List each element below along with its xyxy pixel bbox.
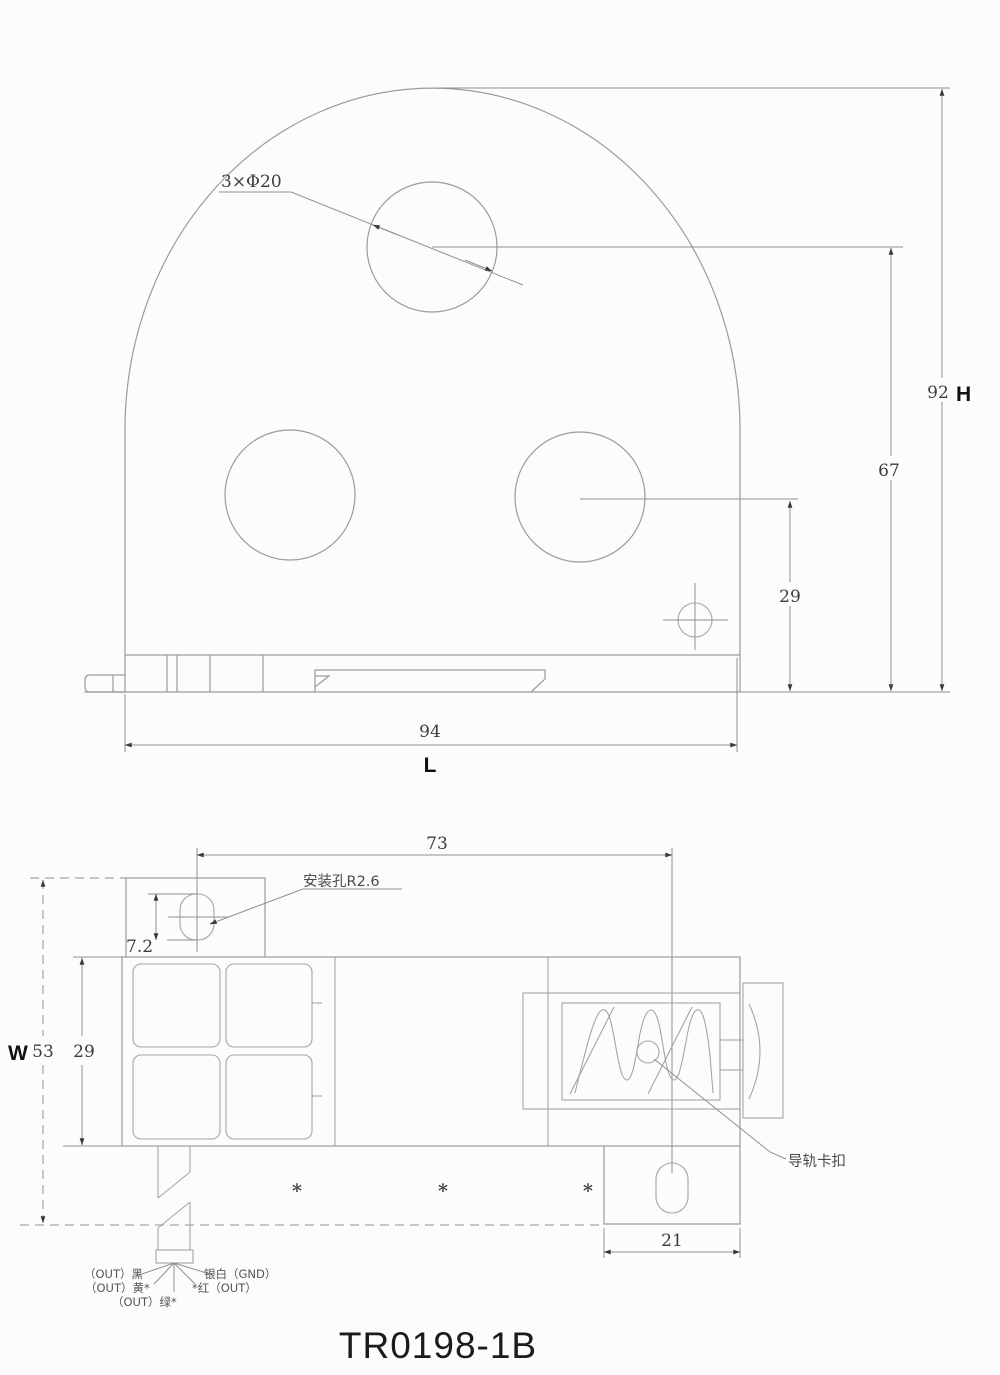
side-body-outline (122, 957, 740, 1146)
dim-total-width-value: 94 (419, 722, 441, 742)
clip-spring (575, 1010, 713, 1093)
dim-lower-hole-height: 29 (779, 501, 801, 691)
footnote-mark-3: * (583, 1180, 593, 1202)
wire-label-red: *红（OUT） (192, 1281, 257, 1295)
dim-total-width-label: L (424, 754, 437, 777)
dim-total-height-label: H (956, 383, 971, 406)
mounting-hole-note: 安装孔R2.6 (303, 873, 380, 890)
dim-body-depth: 29 (63, 957, 122, 1146)
dim-total-height-value: 92 (927, 383, 949, 403)
side-view: 7.2 73 安装孔R2.6 (8, 834, 846, 1309)
dim-total-depth: W 53 (8, 878, 604, 1225)
dim-hole-center-height-value: 67 (878, 461, 900, 481)
foot-left-tab (85, 675, 125, 692)
clip-spring-hole (637, 1041, 659, 1063)
wire-label-green: （OUT）绿* (112, 1295, 177, 1309)
rail-clip-assembly (523, 983, 786, 1159)
small-hole (663, 583, 728, 650)
wire-labels: （OUT）黑 银白（GND） （OUT）黄* *红（OUT） （OUT）绿* (84, 1267, 276, 1309)
drawing-title: TR0198-1B (339, 1325, 537, 1366)
footnote-mark-2: * (438, 1180, 448, 1202)
wire-bundle (136, 1146, 213, 1292)
rail-clip-note: 导轨卡扣 (788, 1153, 846, 1170)
hole-note: 3×Φ20 (221, 172, 282, 192)
clip-window-outer (523, 993, 740, 1109)
dim-hole-center-height: 67 (878, 248, 900, 691)
dim-total-height: 92 H (927, 89, 971, 691)
dim-slot-height-value: 7.2 (126, 937, 153, 957)
front-body-outline (125, 88, 740, 655)
wire-label-black: （OUT）黑 (84, 1267, 143, 1281)
mounting-hole-note-leader (210, 889, 402, 924)
terminal-block (133, 964, 322, 1139)
wire-label-silver: 银白（GND） (204, 1267, 276, 1281)
dim-tab-width: 21 (604, 1228, 740, 1258)
rail-slot-right-hook (531, 670, 545, 692)
spring-diagonal-left (570, 1007, 614, 1094)
dim-lower-hole-height-value: 29 (779, 587, 801, 607)
spring-diagonal-right (648, 1007, 692, 1094)
dim-hole-spacing-value: 73 (426, 834, 448, 854)
drawing-page: 3×Φ20 92 H 67 29 94 (0, 0, 1000, 1375)
dim-total-depth-value: 53 (32, 1042, 54, 1062)
rail-slot-left-hook (315, 670, 329, 692)
clip-end-arc (749, 1004, 760, 1099)
dim-tab-width-value: 21 (661, 1231, 683, 1251)
dim-total-depth-label: W (8, 1042, 28, 1065)
dim-total-width: 94 L (125, 658, 737, 777)
footnote-mark-1: * (292, 1180, 302, 1202)
dim-slot-height: 7.2 (126, 894, 197, 957)
wire-label-yellow: （OUT）黄* (85, 1281, 150, 1295)
din-rail-foot (85, 655, 740, 692)
technical-drawing: 3×Φ20 92 H 67 29 94 (0, 0, 1000, 1375)
front-view: 3×Φ20 92 H 67 29 94 (85, 88, 971, 777)
dim-body-depth-value: 29 (73, 1042, 95, 1062)
hole-left (225, 430, 355, 560)
hole-right (515, 432, 645, 562)
